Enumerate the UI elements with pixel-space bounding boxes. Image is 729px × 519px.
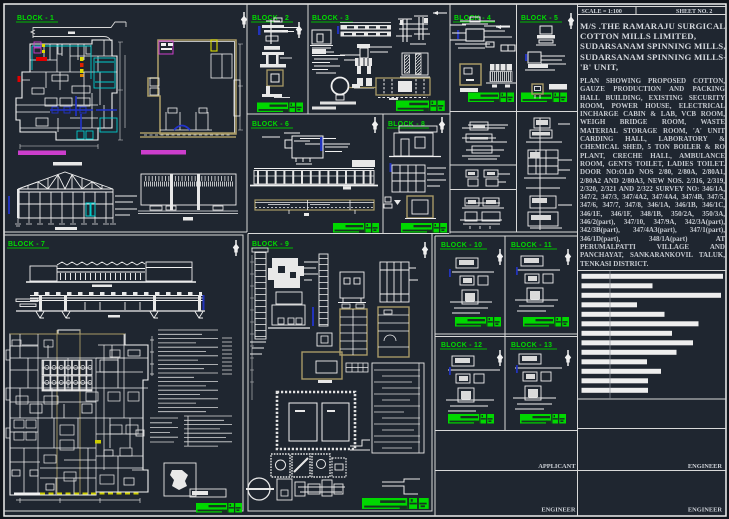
svg-text:APPLICANT: APPLICANT <box>538 463 576 470</box>
svg-text:BLOCK - 13: BLOCK - 13 <box>511 342 552 349</box>
svg-text:ENGINEER: ENGINEER <box>688 507 722 514</box>
svg-text:SCALE = 1:100: SCALE = 1:100 <box>582 9 622 15</box>
svg-text:BLOCK - 11: BLOCK - 11 <box>511 242 552 249</box>
svg-text:SHEET NO. 2: SHEET NO. 2 <box>676 9 712 15</box>
svg-text:BLOCK - 7: BLOCK - 7 <box>8 241 45 248</box>
svg-text:ENGINEER: ENGINEER <box>688 463 722 470</box>
svg-text:BLOCK - 9: BLOCK - 9 <box>252 241 289 248</box>
svg-text:BLOCK - 12: BLOCK - 12 <box>441 342 482 349</box>
svg-text:BLOCK - 3: BLOCK - 3 <box>312 15 349 22</box>
svg-text:BLOCK - 10: BLOCK - 10 <box>441 242 482 249</box>
svg-text:ENGINEER: ENGINEER <box>541 507 575 514</box>
svg-text:BLOCK - 8: BLOCK - 8 <box>388 121 425 128</box>
svg-text:BLOCK - 5: BLOCK - 5 <box>521 15 558 22</box>
svg-text:BLOCK - 6: BLOCK - 6 <box>252 121 289 128</box>
svg-text:BLOCK - 1: BLOCK - 1 <box>17 15 54 22</box>
